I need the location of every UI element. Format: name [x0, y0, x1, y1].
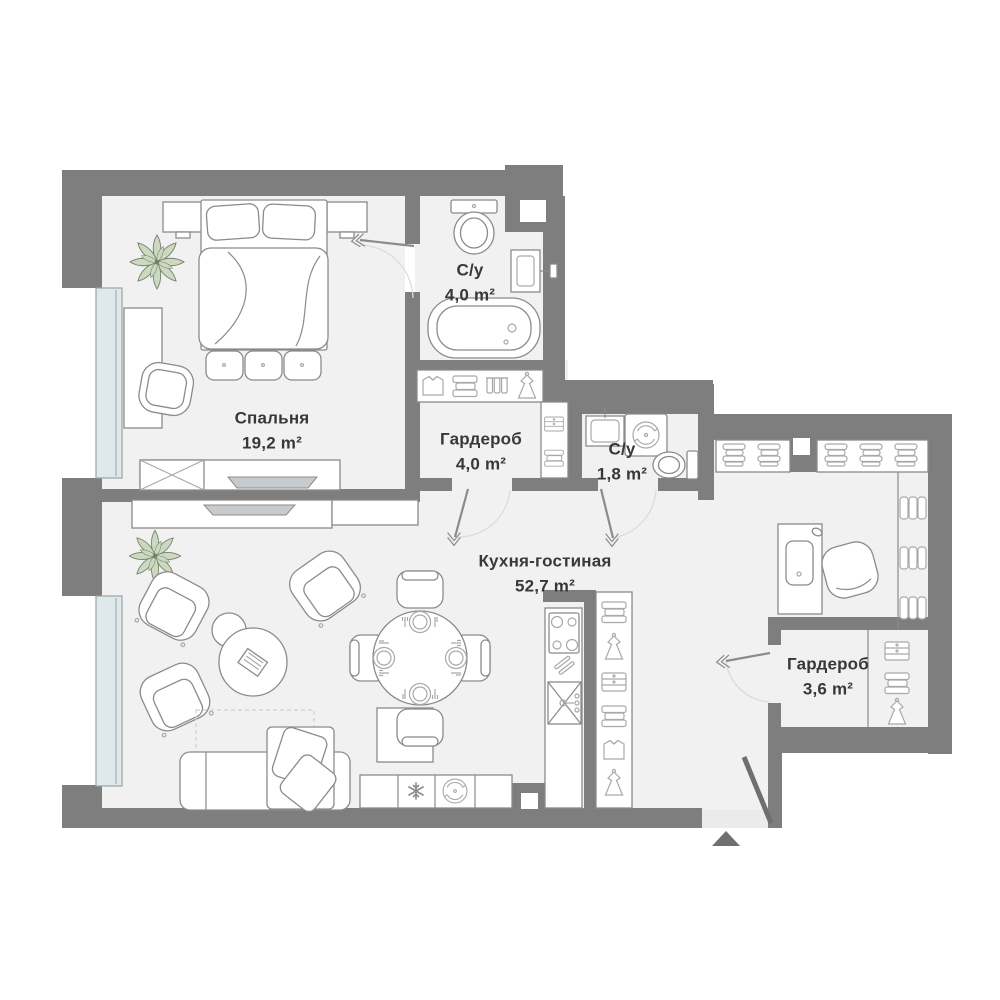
window-living — [96, 596, 122, 786]
book-stack-icon — [895, 444, 917, 466]
room-area: 4,0 m² — [445, 283, 495, 308]
room-name: С/у — [597, 437, 647, 462]
pillow-icon — [206, 203, 260, 241]
hall-closet — [596, 592, 632, 808]
radiator-icon — [900, 497, 926, 519]
pillow-icon — [262, 204, 316, 241]
study-desk — [778, 524, 823, 614]
clothes-rail-icon — [486, 378, 508, 393]
room-name: Гардероб — [440, 427, 522, 452]
clothes-stack-icon — [885, 673, 909, 694]
room-label-kitchen-living: Кухня-гостиная 52,7 m² — [478, 549, 611, 598]
plant-icon — [130, 235, 184, 289]
room-area: 3,6 m² — [787, 677, 869, 702]
kitchen-sink-icon — [548, 682, 581, 724]
clothes-stack-icon — [545, 450, 564, 466]
room-name: Спальня — [235, 406, 310, 431]
toilet-icon — [451, 200, 497, 254]
floor-plan: Спальня 19,2 m² С/у 4,0 m² Гардероб 4,0 … — [0, 0, 1000, 1000]
radiator-icon — [900, 547, 926, 569]
room-label-bedroom: Спальня 19,2 m² — [235, 406, 310, 455]
book-stack-icon — [758, 444, 780, 466]
drawers-icon — [545, 417, 564, 431]
room-area: 52,7 m² — [478, 574, 611, 599]
room-name: Гардероб — [787, 652, 869, 677]
dining-chair — [397, 571, 443, 608]
book-stack-icon — [860, 444, 882, 466]
radiator-icon — [900, 597, 926, 619]
room-label-wardrobe-main: Гардероб 4,0 m² — [440, 427, 522, 476]
nightstand-right — [327, 202, 367, 238]
bedroom-tv-console — [140, 460, 340, 490]
book-stack-icon — [825, 444, 847, 466]
clothes-shirt-icon — [604, 741, 624, 760]
drawers-icon — [885, 642, 909, 660]
room-area: 19,2 m² — [235, 431, 310, 456]
book-stack-icon — [723, 444, 745, 466]
kitchen-bottom-cabinets — [360, 775, 512, 808]
tv-icon — [228, 477, 317, 488]
nightstand-left — [163, 202, 203, 238]
clothes-stack-icon — [602, 602, 626, 623]
bed-bench — [206, 351, 321, 380]
room-area: 1,8 m² — [597, 462, 647, 487]
dining-chair — [397, 709, 443, 746]
tv-icon — [204, 505, 295, 515]
window-bedroom — [96, 288, 122, 478]
dishwasher-icon — [443, 779, 467, 803]
toilet-icon — [653, 451, 698, 479]
entrance-arrow-icon — [712, 831, 740, 846]
room-name: С/у — [445, 258, 495, 283]
kitchen-counter — [545, 608, 582, 808]
room-label-bathroom-small: С/у 1,8 m² — [597, 437, 647, 486]
drawers-icon — [602, 673, 626, 691]
laptop-icon — [786, 541, 813, 585]
bedroom-chair — [136, 360, 196, 418]
living-tv-console — [132, 500, 418, 528]
clothes-shirt-icon — [423, 377, 443, 396]
room-name: Кухня-гостиная — [478, 549, 611, 574]
bed — [199, 200, 328, 350]
bookshelf — [716, 440, 928, 472]
clothes-stack-icon — [453, 376, 477, 397]
room-label-wardrobe-hall: Гардероб 3,6 m² — [787, 652, 869, 701]
floor-plan-drawing — [0, 0, 1000, 1000]
room-label-bathroom-main: С/у 4,0 m² — [445, 258, 495, 307]
clothes-stack-icon — [602, 706, 626, 727]
room-area: 4,0 m² — [440, 452, 522, 477]
